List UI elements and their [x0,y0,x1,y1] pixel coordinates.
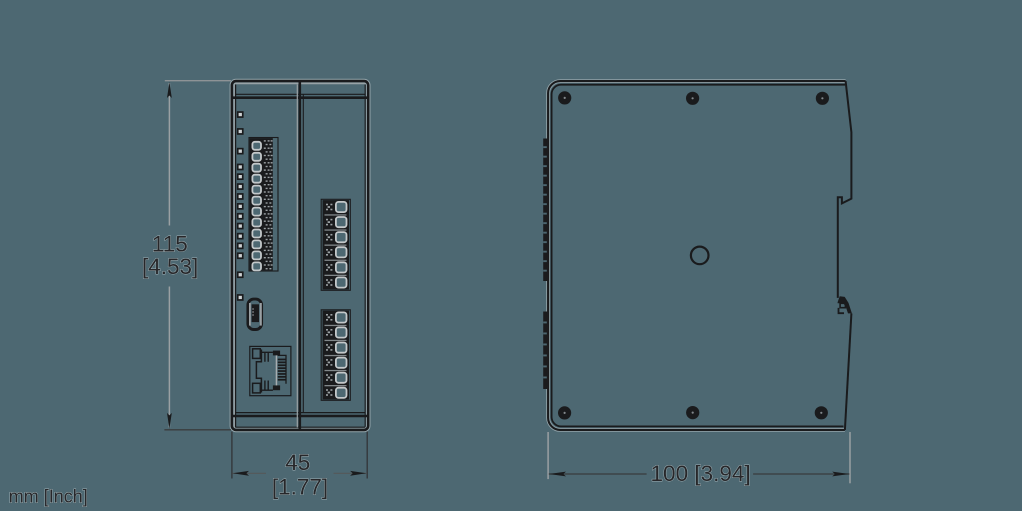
svg-text:115: 115 [152,232,188,257]
svg-text:mm [Inch]: mm [Inch] [9,486,88,506]
svg-text:45: 45 [285,450,310,475]
svg-text:100 [3.94]: 100 [3.94] [651,461,751,486]
svg-text:[4.53]: [4.53] [142,254,198,279]
svg-text:[1.77]: [1.77] [272,474,328,499]
